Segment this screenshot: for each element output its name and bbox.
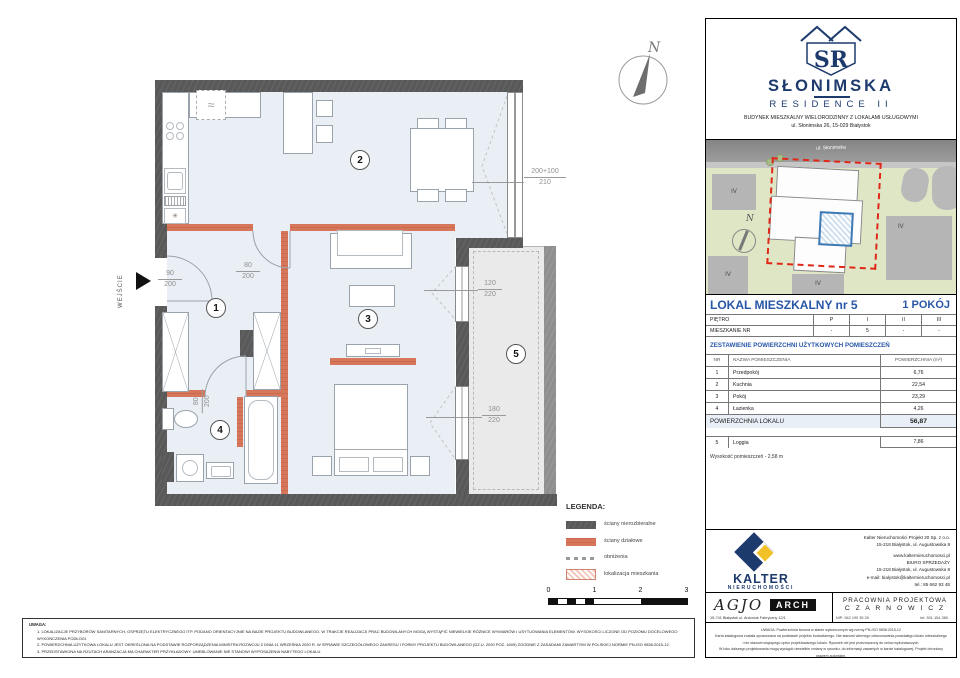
- legend-label: ściany nierozbieralne: [604, 521, 656, 527]
- sofa: [330, 233, 412, 269]
- apartment-cell: -: [813, 325, 849, 336]
- legend-label: ściany działowe: [604, 538, 643, 544]
- room-name: Pokój: [728, 390, 880, 402]
- loggia-name: Loggia: [728, 436, 880, 448]
- hob-burner: [176, 132, 184, 140]
- dim-value: 200: [242, 273, 254, 281]
- hob-burner: [166, 132, 174, 140]
- total-label: POWIERZCHNIA LOKALU: [706, 414, 880, 428]
- dim-line: [236, 271, 260, 272]
- dim-value: 220: [484, 291, 496, 299]
- bathtub: [244, 396, 278, 484]
- stove-symbol: ≈: [208, 98, 215, 112]
- legend-swatch-structural: [566, 521, 596, 529]
- height-note: Wysokość pomieszczeń - 2,58 m: [710, 454, 783, 460]
- room-marker-hall: 1: [206, 298, 226, 318]
- room-area: 22,54: [880, 378, 956, 390]
- fineprint-line: Karta katalogowa została opracowana na p…: [714, 633, 948, 639]
- partition-bath-inner: [237, 397, 243, 447]
- wall-pier-a: [456, 248, 469, 266]
- unit-header: LOKAL MIESZKALNY nr 5 1 POKÓJ: [706, 294, 956, 314]
- kalter-sub: nieruchomości: [706, 585, 816, 591]
- floor-cell: I: [849, 314, 885, 325]
- brand-underline: [814, 96, 850, 98]
- block-label: IV: [815, 281, 821, 287]
- room-area: 6,76: [880, 366, 956, 378]
- dim-room-door: 80 200: [236, 262, 260, 280]
- kalter-contact: Kalter Nieruchomości Projekt 20 Sp. z o.…: [812, 534, 950, 588]
- col-header-nr: NR: [706, 354, 728, 366]
- stove: ≈: [196, 90, 226, 120]
- note-line: 1. LOKALIZACJE PRZYBORÓW SANITARNYCH, OS…: [29, 629, 688, 643]
- entrance-arrow-icon: [136, 272, 151, 290]
- floors-row-label: MIESZKANIE NR: [706, 325, 813, 336]
- dim-entrance-door: 90 200: [158, 270, 182, 288]
- dim-value: 220: [488, 417, 500, 425]
- kalter-line: e-mail: bialystok@kalternieruchomosci.pl: [812, 574, 950, 581]
- room-area: 23,29: [880, 390, 956, 402]
- bath-column: [162, 452, 174, 482]
- scale-tick: 0: [545, 587, 552, 594]
- dim-value: 200: [164, 281, 176, 289]
- legend-swatch-partition: [566, 538, 596, 546]
- loggia-window-large: [455, 386, 469, 460]
- designers-section: AGJO ARCH 15-741 Białystok ul. Antoniuk …: [706, 592, 956, 622]
- kitchen-sink: [164, 168, 186, 194]
- dining-chair: [417, 189, 439, 202]
- north-arrow-needle: [633, 54, 650, 97]
- loggia-area: 7,86: [880, 436, 956, 448]
- kalter-line: Kalter Nieruchomości Projekt 20 Sp. z o.…: [812, 534, 950, 541]
- floor-cell: III: [921, 314, 956, 325]
- wardrobe: [162, 312, 189, 392]
- kalter-section: KALTER nieruchomości Kalter Nieruchomośc…: [706, 529, 956, 592]
- partition-bath-room: [281, 397, 288, 494]
- notes-title: UWAGA:: [29, 622, 688, 629]
- north-arrow-circle: [619, 56, 667, 104]
- site-plan: ul. Słonimska IV IV IV IV N: [706, 139, 956, 294]
- scale-tick: 1: [591, 587, 598, 594]
- legend-label: lokalizacja mieszkania: [604, 571, 658, 577]
- section-divider: [832, 593, 833, 623]
- room-marker-loggia: 5: [506, 344, 526, 364]
- pracownia-nip: NIP: 542 199 35 28: [836, 616, 869, 620]
- dining-table: [410, 128, 474, 192]
- scale-tick: 2: [637, 587, 644, 594]
- coffee-table: [349, 285, 395, 307]
- floors-table: PIĘTRO P I II III MIESZKANIE NR - 5 - -: [706, 314, 956, 336]
- tv-stand: [346, 344, 400, 357]
- kalter-line: www.kalternieruchomosci.pl: [812, 552, 950, 559]
- pillow: [339, 457, 369, 472]
- fineprint-section: UWAGA: Powierzchnia liczona w stanie wyk…: [706, 622, 956, 659]
- kalter-name: KALTER: [706, 572, 816, 586]
- washer-drum: [182, 460, 198, 476]
- toilet-tank: [162, 408, 174, 430]
- room-number: 3: [365, 314, 371, 325]
- neighbor-block: IV: [792, 274, 844, 294]
- floor-cell: P: [813, 314, 849, 325]
- loggia-side-wall: [544, 246, 556, 494]
- agio-tag: ARCH: [770, 599, 816, 611]
- room-nr: 4: [706, 402, 728, 414]
- wall-bottom: [155, 494, 557, 506]
- sink-basin: [167, 172, 183, 190]
- dim-value: 200: [204, 395, 212, 407]
- brand-desc1: BUDYNEK MIESZKALNY WIELORODZINNY Z LOKAL…: [706, 115, 956, 121]
- room-marker-bath: 4: [210, 420, 230, 440]
- areas-table: NR NAZWA POMIESZCZENIA POWIERZCHNIA (m²)…: [706, 354, 956, 464]
- wall-pier-b: [456, 322, 469, 386]
- room-marker-kitchen: 2: [350, 150, 370, 170]
- info-panel: SR SŁONIMSKA RESIDENCE II BUDYNEK MIESZK…: [705, 18, 957, 658]
- plot-boundary: [766, 157, 881, 270]
- fridge-symbol: ✳: [172, 212, 178, 220]
- room-number: 2: [357, 155, 363, 166]
- kitchen-island: [283, 92, 313, 154]
- brand-desc2: ul. Słonimska 26, 15-029 Białystok: [706, 123, 956, 129]
- bed: [334, 384, 408, 476]
- unit-type: 1 POKÓJ: [902, 299, 950, 311]
- dim-value: 90: [166, 270, 174, 278]
- nightstand: [312, 456, 332, 476]
- washing-machine: [176, 454, 204, 482]
- brand-monogram: SR: [814, 47, 849, 73]
- dim-line: [158, 279, 182, 280]
- hob-burner: [176, 122, 184, 130]
- room-marker-room: 3: [358, 309, 378, 329]
- dim-value: 210: [539, 179, 551, 187]
- room-name: Łazienka: [728, 402, 880, 414]
- dim-loggia-window-large: 180 220: [482, 406, 506, 424]
- brand-logo-icon: SR: [793, 21, 869, 77]
- legend-swatch-unit-location: [566, 569, 596, 580]
- dim-value: 120: [484, 280, 496, 288]
- dim-kitchen-window: 200+100 210: [524, 168, 566, 186]
- agio-name: AGJO: [714, 596, 763, 614]
- floors-row-label: PIĘTRO: [706, 314, 813, 325]
- partition-hall-room: [281, 231, 288, 397]
- dim-line: [482, 415, 506, 416]
- unit-title: LOKAL MIESZKALNY nr 5: [710, 298, 858, 312]
- partition-kitchen-hall-left: [167, 224, 253, 231]
- dim-bath-door: 80 200: [193, 389, 211, 413]
- total-value: 56,87: [880, 414, 956, 428]
- kalter-line: 15-218 Białystok, ul. Augustowska 8: [812, 566, 950, 573]
- dim-value: 80: [193, 397, 201, 405]
- col-header-area: POWIERZCHNIA (m²): [880, 354, 956, 366]
- nightstand: [410, 456, 430, 476]
- room-number: 4: [217, 425, 223, 436]
- legend-title: LEGENDA:: [566, 502, 605, 511]
- legend-label: obniżenia: [604, 554, 628, 560]
- wall-step-right: [456, 238, 523, 248]
- floor-cell: II: [885, 314, 921, 325]
- areas-section-title: ZESTAWIENIE POWIERZCHNI UŻYTKOWYCH POMIE…: [706, 336, 956, 354]
- room-nr: 2: [706, 378, 728, 390]
- scale-segment: [641, 599, 687, 604]
- fineprint-line: W toku dalszego projektowania mogą wystą…: [714, 646, 948, 659]
- dim-loggia-window-small: 120 220: [478, 280, 502, 298]
- scale-segment: [549, 599, 595, 604]
- block-label: IV: [898, 224, 904, 230]
- sofa-back: [337, 230, 403, 256]
- stool: [316, 100, 333, 117]
- bathroom-sink: [206, 462, 234, 479]
- room-name: Przedpokój: [728, 366, 880, 378]
- sink-basin: [211, 466, 231, 477]
- pracownia-line1: PRACOWNIA PROJEKTOWA: [834, 597, 956, 604]
- apartment-cell: 5: [849, 325, 885, 336]
- neighbor-block: IV: [712, 174, 756, 210]
- neighbor-block: IV: [886, 216, 952, 280]
- agio-address: 15-741 Białystok ul. Antoniuk Fabryczny …: [710, 616, 830, 620]
- block-label: IV: [731, 189, 737, 195]
- note-line: 2. POWIERZCHNIA UŻYTKOWA LOKALU JEST OKR…: [29, 642, 688, 649]
- apartment-cell: -: [885, 325, 921, 336]
- dim-line: [478, 289, 502, 290]
- pillow: [373, 457, 403, 472]
- block-label: IV: [725, 272, 731, 278]
- fridge: ✳: [164, 208, 186, 224]
- dim-value: 180: [488, 406, 500, 414]
- dim-leader: [426, 417, 482, 418]
- kalter-line: BIURO SPRZEDAŻY: [812, 559, 950, 566]
- neighbor-block: IV: [708, 256, 748, 294]
- scale-tick: 3: [683, 587, 690, 594]
- north-label: N: [647, 40, 661, 56]
- apartment-cell: -: [921, 325, 956, 336]
- room-name: Kuchnia: [728, 378, 880, 390]
- dishwasher: [164, 196, 186, 206]
- loggia-nr: 5: [706, 436, 728, 448]
- room-number: 1: [213, 303, 219, 314]
- wall-pier-c: [456, 460, 469, 494]
- room-area: 4,26: [880, 402, 956, 414]
- catalog-card-page: ✳ ≈ N: [0, 0, 960, 678]
- wardrobe: [253, 312, 281, 390]
- kalter-logo-icon: [736, 534, 780, 574]
- loggia-window-small: [455, 266, 469, 322]
- driveway-shape: [899, 166, 931, 204]
- bathtub-inner: [248, 400, 274, 480]
- room-nr: 3: [706, 390, 728, 402]
- entrance-label: WEJŚCIE: [118, 260, 124, 308]
- driveway-shape: [932, 166, 956, 210]
- pracownia-line2: C Z A R N O W I C Z: [834, 605, 956, 612]
- notes-box: UWAGA: 1. LOKALIZACJE PRZYBORÓW SANITARN…: [22, 618, 695, 658]
- dim-leader: [472, 182, 524, 183]
- stool: [316, 125, 333, 143]
- scale-bar: [548, 598, 688, 605]
- kitchen-window: [507, 92, 523, 238]
- kalter-line: 15-218 Białystok, ul. Augustowska 8: [812, 541, 950, 548]
- brand-subname: RESIDENCE II: [706, 99, 956, 110]
- brand-name: SŁONIMSKA: [706, 77, 956, 96]
- dim-value: 200+100: [531, 168, 558, 176]
- col-header-name: NAZWA POMIESZCZENIA: [728, 354, 880, 366]
- kalter-line: tel.: 85 662 93 48: [812, 581, 950, 588]
- site-north-label: N: [746, 214, 754, 224]
- dining-chair: [445, 189, 467, 202]
- bed-blanket-line: [335, 449, 407, 450]
- dim-value: 80: [244, 262, 252, 270]
- dim-line: [202, 389, 203, 413]
- tv-set: [365, 348, 381, 354]
- brand-header: SR SŁONIMSKA RESIDENCE II BUDYNEK MIESZK…: [706, 19, 956, 139]
- dim-line: [524, 177, 566, 178]
- note-line: 3. PRZEDSTAWIONA NA RZUTACH ARANŻACJA MA…: [29, 649, 688, 656]
- hall-column: [240, 330, 253, 357]
- legend-swatch-dropped-ceiling: [566, 557, 596, 560]
- pracownia-tel: tel. 501-154-380: [920, 616, 948, 620]
- dim-leader: [424, 290, 478, 291]
- room-nr: 1: [706, 366, 728, 378]
- hob-burner: [166, 122, 174, 130]
- partition-tv-wall: [330, 358, 416, 365]
- room-number: 5: [513, 349, 519, 360]
